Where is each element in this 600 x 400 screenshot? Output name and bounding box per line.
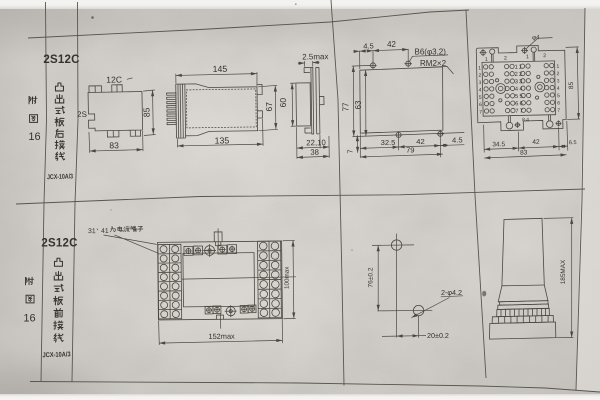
svg-text:42: 42 <box>387 40 396 49</box>
svg-text:6: 6 <box>479 102 482 108</box>
svg-text:22,10: 22,10 <box>306 138 326 147</box>
svg-text:6: 6 <box>557 100 560 106</box>
svg-text:3: 3 <box>479 80 482 86</box>
svg-text:20±0.2: 20±0.2 <box>427 331 449 340</box>
svg-text:77: 77 <box>515 109 524 115</box>
svg-text:2: 2 <box>557 71 560 77</box>
svg-text:33: 33 <box>515 79 524 85</box>
svg-text:79: 79 <box>406 146 414 155</box>
svg-text:85: 85 <box>141 107 151 117</box>
svg-text:1: 1 <box>556 64 559 70</box>
svg-text:4.5: 4.5 <box>452 135 463 144</box>
svg-text:67: 67 <box>264 102 274 112</box>
svg-text:JCX-10A/3: JCX-10A/3 <box>42 351 70 359</box>
svg-text:32.5: 32.5 <box>381 138 396 147</box>
svg-text:83: 83 <box>109 140 119 150</box>
svg-text:66: 66 <box>515 101 524 107</box>
svg-text:55: 55 <box>515 94 524 100</box>
svg-text:63: 63 <box>354 100 363 109</box>
svg-text:2: 2 <box>504 56 507 62</box>
svg-text:11: 11 <box>515 64 524 70</box>
svg-text:16: 16 <box>28 131 40 143</box>
svg-text:12C: 12C <box>106 74 122 84</box>
svg-text:4: 4 <box>479 87 482 93</box>
svg-text:2.5max: 2.5max <box>302 52 328 61</box>
svg-text:100max: 100max <box>284 266 291 289</box>
svg-text:1: 1 <box>526 54 529 60</box>
svg-text:1: 1 <box>485 57 488 63</box>
svg-text:5: 5 <box>557 93 560 99</box>
svg-text:2S12C: 2S12C <box>43 54 79 66</box>
svg-text:34.5: 34.5 <box>492 141 505 148</box>
svg-text:185MAX: 185MAX <box>560 259 567 284</box>
svg-text:2: 2 <box>543 53 546 59</box>
svg-text:38: 38 <box>310 148 319 157</box>
svg-text:8.4: 8.4 <box>522 117 529 123</box>
svg-text:6.5: 6.5 <box>569 140 577 146</box>
svg-text:31: 31 <box>88 228 96 235</box>
svg-text:7: 7 <box>557 108 560 114</box>
svg-text:2S: 2S <box>77 110 87 119</box>
svg-text:JCX-10A/3: JCX-10A/3 <box>47 173 73 181</box>
svg-text:5: 5 <box>479 95 482 101</box>
svg-text:16: 16 <box>23 313 35 325</box>
svg-text:44: 44 <box>515 86 524 92</box>
svg-text:22: 22 <box>515 72 524 78</box>
svg-text:4: 4 <box>557 86 560 92</box>
svg-text:152max: 152max <box>208 332 235 341</box>
svg-text:60: 60 <box>278 98 288 108</box>
svg-text:2: 2 <box>478 73 481 79</box>
svg-text:77: 77 <box>341 103 350 112</box>
svg-text:42: 42 <box>416 137 424 146</box>
svg-text:4.5: 4.5 <box>363 42 374 51</box>
svg-text:42: 42 <box>532 139 540 146</box>
svg-text:83: 83 <box>520 149 528 156</box>
svg-text:7: 7 <box>346 149 355 153</box>
svg-text:76±0.2: 76±0.2 <box>368 267 375 287</box>
svg-text:85: 85 <box>568 81 575 89</box>
svg-text:1: 1 <box>478 65 481 71</box>
svg-text:135: 135 <box>215 135 230 145</box>
svg-text:41: 41 <box>101 228 109 235</box>
svg-text:145: 145 <box>213 64 228 74</box>
svg-text:3: 3 <box>557 78 560 84</box>
svg-text:2S12C: 2S12C <box>41 238 77 250</box>
svg-text:7: 7 <box>479 110 482 116</box>
